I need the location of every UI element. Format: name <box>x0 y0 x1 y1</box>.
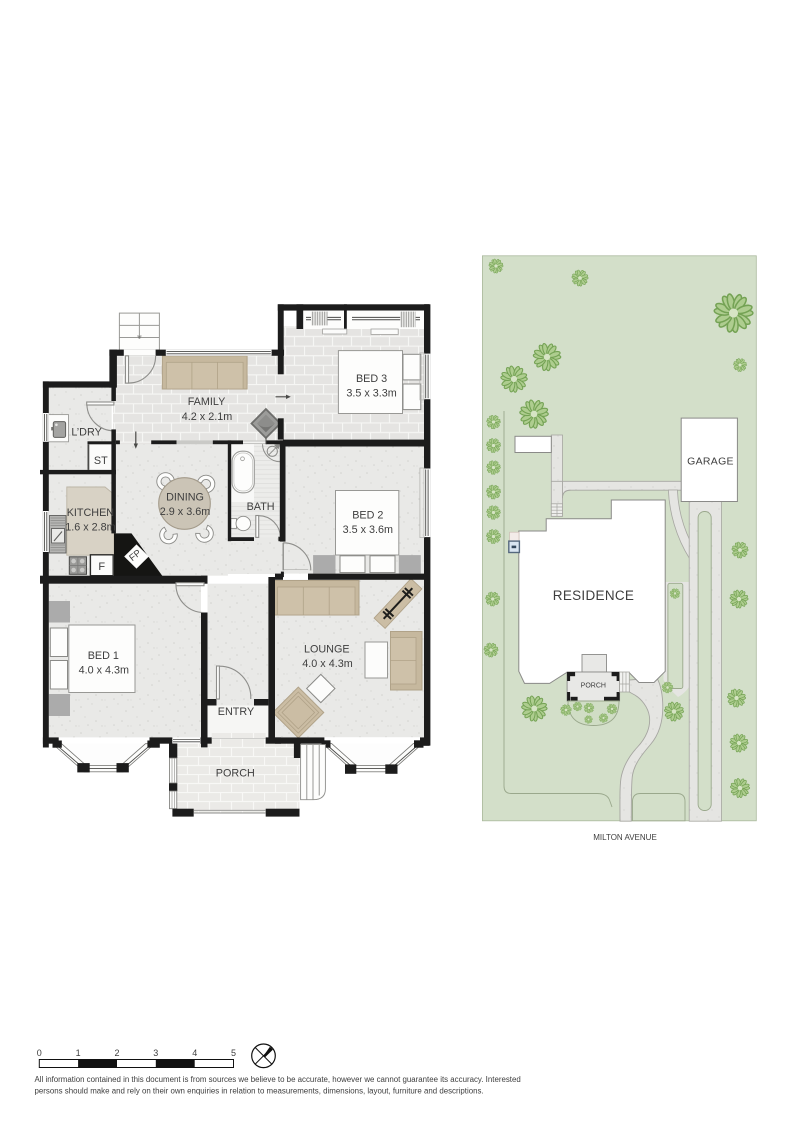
svg-text:GARAGE: GARAGE <box>687 456 734 468</box>
svg-text:PORCH: PORCH <box>216 767 255 779</box>
svg-text:PORCH: PORCH <box>581 682 606 689</box>
svg-text:RESIDENCE: RESIDENCE <box>553 588 634 603</box>
svg-text:MILTON AVENUE: MILTON AVENUE <box>593 833 657 842</box>
svg-text:persons should make and rely o: persons should make and rely on their ow… <box>35 1087 484 1096</box>
svg-text:DINING: DINING <box>166 491 204 503</box>
svg-text:L’DRY: L’DRY <box>71 426 101 438</box>
svg-text:3: 3 <box>153 1048 158 1058</box>
svg-text:3.5 x 3.6m: 3.5 x 3.6m <box>343 524 393 536</box>
svg-text:F: F <box>98 561 105 573</box>
svg-text:BATH: BATH <box>247 501 275 513</box>
svg-text:ENTRY: ENTRY <box>218 706 254 718</box>
svg-text:4.2 x 2.1m: 4.2 x 2.1m <box>182 411 232 423</box>
svg-text:3.5 x 3.3m: 3.5 x 3.3m <box>346 387 396 399</box>
svg-text:LOUNGE: LOUNGE <box>304 643 350 655</box>
svg-text:BED 3: BED 3 <box>356 373 387 385</box>
svg-text:All information contained in t: All information contained in this docume… <box>35 1075 521 1084</box>
svg-text:BED 2: BED 2 <box>352 510 383 522</box>
svg-text:0: 0 <box>37 1048 42 1058</box>
svg-text:1: 1 <box>76 1048 81 1058</box>
svg-text:4: 4 <box>192 1048 197 1058</box>
svg-text:1.6 x 2.8m: 1.6 x 2.8m <box>65 522 115 534</box>
svg-text:5: 5 <box>231 1048 236 1058</box>
svg-text:2.9 x 3.6m: 2.9 x 3.6m <box>160 506 210 518</box>
svg-text:2: 2 <box>114 1048 119 1058</box>
svg-text:FAMILY: FAMILY <box>188 396 226 408</box>
svg-text:ST: ST <box>94 455 108 467</box>
svg-text:BED 1: BED 1 <box>88 650 119 662</box>
svg-text:4.0 x 4.3m: 4.0 x 4.3m <box>79 665 129 677</box>
svg-text:KITCHEN: KITCHEN <box>67 507 114 519</box>
svg-text:4.0 x 4.3m: 4.0 x 4.3m <box>302 658 352 670</box>
